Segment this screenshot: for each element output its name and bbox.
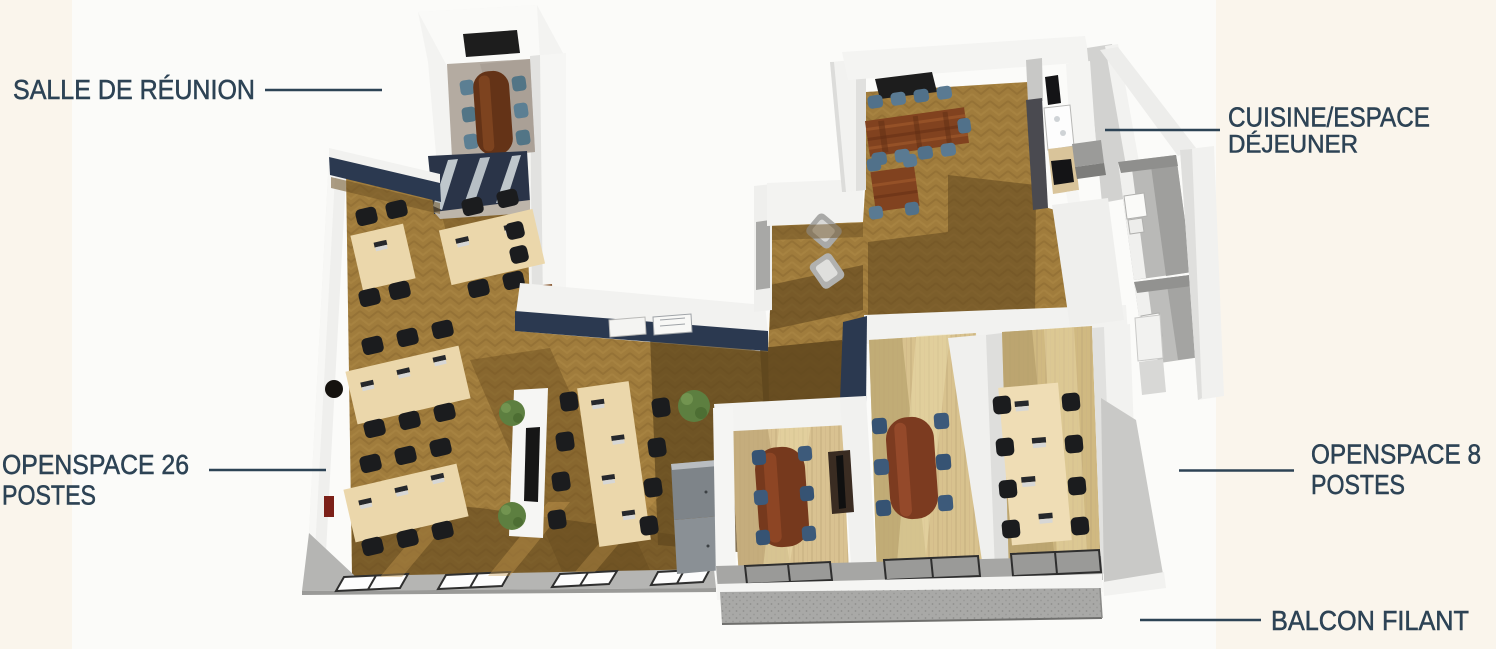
svg-text:POSTES: POSTES [2,480,96,511]
svg-text:OPENSPACE 8: OPENSPACE 8 [1311,439,1481,470]
svg-text:POSTES: POSTES [1311,469,1405,500]
svg-text:DÉJEUNER: DÉJEUNER [1228,130,1358,159]
svg-text:SALLE DE RÉUNION: SALLE DE RÉUNION [13,74,255,105]
svg-text:OPENSPACE 26: OPENSPACE 26 [2,449,189,480]
svg-text:CUISINE/ESPACE: CUISINE/ESPACE [1228,102,1430,133]
svg-text:BALCON FILANT: BALCON FILANT [1271,605,1469,636]
